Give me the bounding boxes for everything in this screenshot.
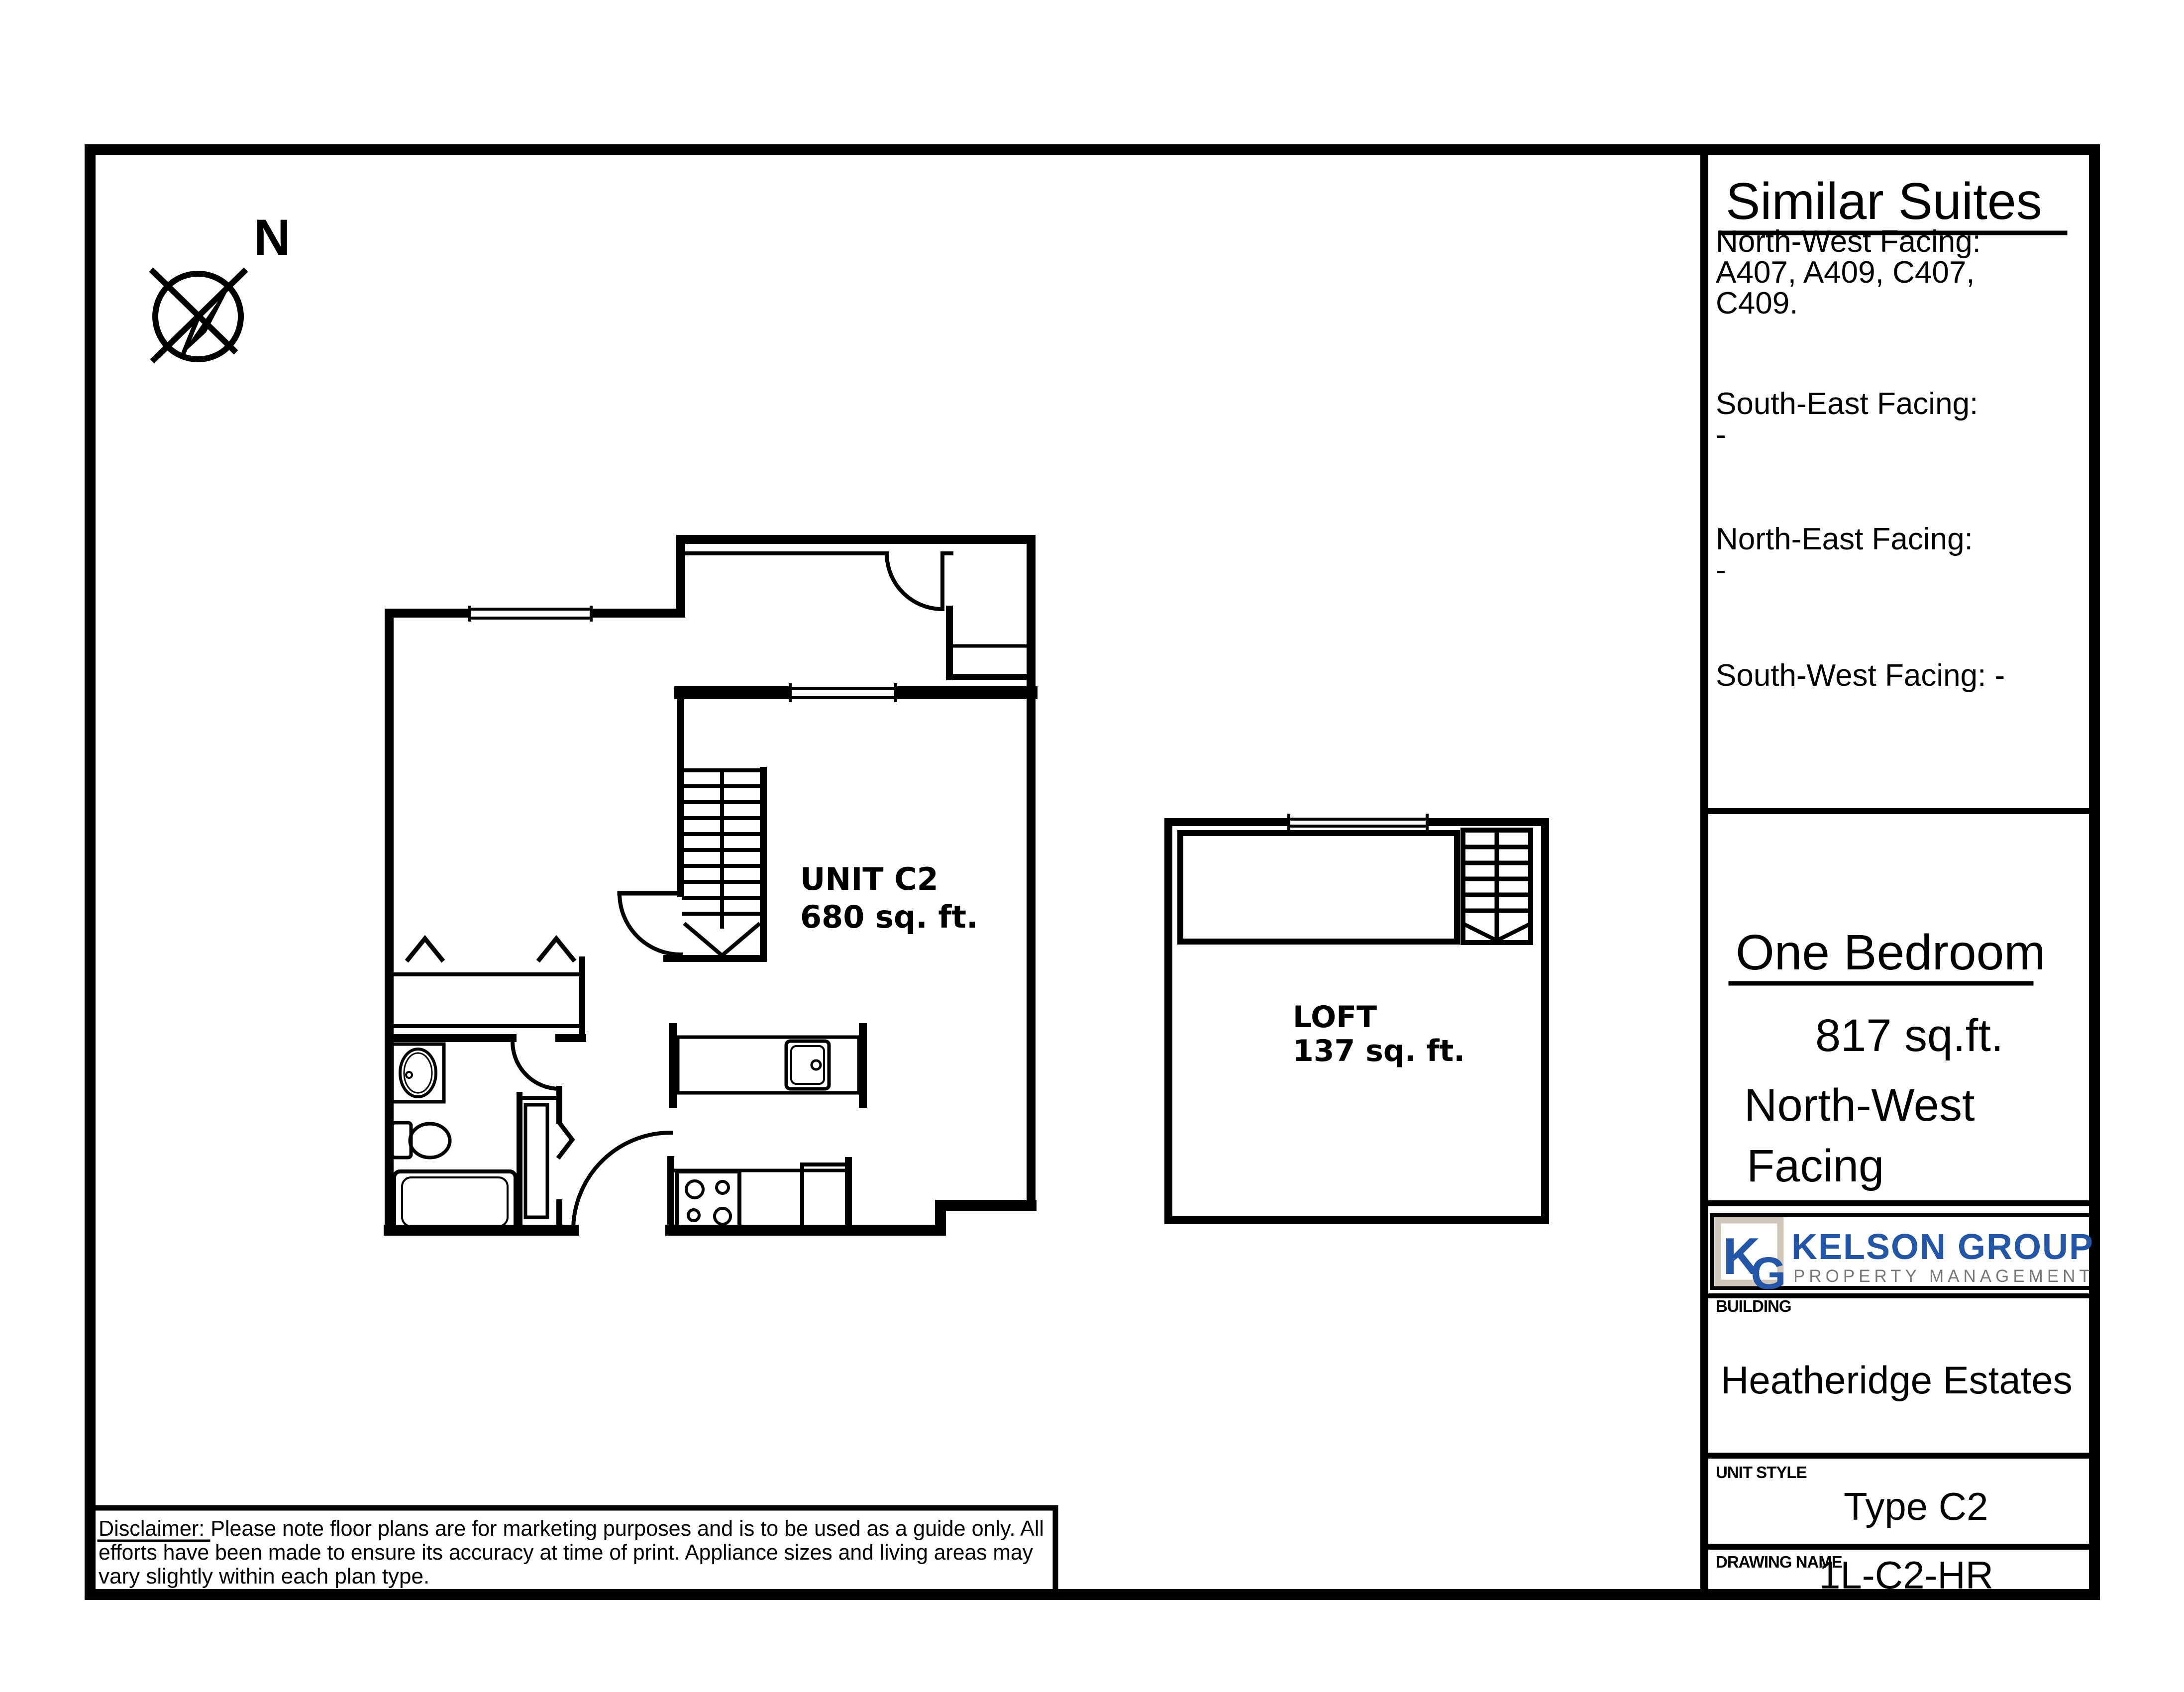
loft-open-below-area <box>1180 833 1457 942</box>
bathroom-sink <box>400 1049 436 1097</box>
facing-ne-units: - <box>1716 553 1726 587</box>
main-unit-plan: UNIT C2 680 sq. ft. <box>389 539 1031 1232</box>
facing-ne-label: North-East Facing: <box>1716 522 1973 556</box>
wall-bottom-right-notch <box>940 1205 1031 1230</box>
unit-summary-panel: One Bedroom 817 sq.ft. North-West Facing <box>1731 925 2046 1191</box>
island-counter <box>678 1037 859 1093</box>
stove-burner <box>688 1210 699 1221</box>
logo-company-name: KELSON GROUP <box>1791 1227 2094 1267</box>
facing-sw-label: South-West Facing: - <box>1716 658 2005 693</box>
similar-suites-title: Similar Suites <box>1726 173 2042 230</box>
drawing-canvas: N <box>0 0 2184 1692</box>
entry-bottom-wall <box>681 685 1031 701</box>
title-block: BUILDING Heatheridge Estates UNIT STYLE … <box>1704 1297 2094 1597</box>
unit-area-text: 817 sq.ft. <box>1815 1010 2003 1061</box>
logo-tagline: PROPERTY MANAGEMENT <box>1793 1267 2094 1286</box>
hall-closet <box>520 1089 572 1225</box>
unit-style-value: Type C2 <box>1844 1484 1988 1528</box>
stove-burner <box>717 1181 728 1193</box>
closet-shelf-band <box>389 974 582 1026</box>
stove-burner <box>715 1208 730 1224</box>
bedroom-closet <box>389 939 582 1038</box>
north-label: N <box>254 209 291 266</box>
unit-area-label: 680 sq. ft. <box>800 899 978 935</box>
bathtub-inner <box>402 1177 508 1226</box>
bathroom-door-arc <box>513 1041 559 1089</box>
island-sink-inner <box>791 1046 824 1084</box>
unit-type-heading: One Bedroom <box>1736 925 2046 980</box>
entry-closet <box>949 609 1031 677</box>
toilet-tank <box>392 1123 411 1158</box>
bedroom-door-arc <box>620 893 681 954</box>
hall-door <box>573 1133 671 1230</box>
stair-direction-arrow <box>686 925 758 955</box>
unit-name-label: UNIT C2 <box>800 861 938 897</box>
logo-g: G <box>1751 1248 1786 1299</box>
staircase <box>667 699 763 958</box>
facing-nw-label: North-West Facing: <box>1716 224 1981 259</box>
kitchen-island <box>673 1027 863 1104</box>
closet-rod-chevrons <box>408 939 573 959</box>
bathtub <box>394 1171 516 1232</box>
building-label: BUILDING <box>1716 1297 1791 1315</box>
unit-facing-line2: Facing <box>1747 1141 1884 1191</box>
unit-facing-line1: North-West <box>1744 1080 1975 1131</box>
disclaimer-line-3: vary slightly within each plan type. <box>99 1564 429 1588</box>
bathroom <box>392 1041 559 1232</box>
hall-door-arc <box>573 1133 671 1230</box>
bedroom-door <box>620 893 681 954</box>
loft-name-label: LOFT <box>1293 1000 1377 1035</box>
toilet-bowl <box>410 1124 450 1158</box>
island-faucet-dot <box>812 1060 821 1069</box>
disclaimer-line-1: Disclaimer: Please note floor plans are … <box>99 1516 1044 1541</box>
facing-se-label: South-East Facing: <box>1716 387 1978 421</box>
building-value: Heatheridge Estates <box>1721 1358 2073 1402</box>
facing-nw-units-2: C409. <box>1716 286 1798 320</box>
counter-appliance-block <box>802 1164 848 1230</box>
floor-plan-sheet: N <box>0 0 2184 1692</box>
loft-plan: LOFT 137 sq. ft. <box>1168 815 1545 1220</box>
bifold-door-icon <box>559 1123 572 1157</box>
disclaimer-line-2: efforts have been made to ensure its acc… <box>99 1540 1033 1565</box>
entry-door <box>681 553 951 609</box>
hall-closet-interior <box>525 1105 547 1217</box>
drawing-name-value: 1L-C2-HR <box>1819 1553 1993 1597</box>
sink-drain-dot <box>406 1072 412 1078</box>
kelson-logo: K G KELSON GROUP PROPERTY MANAGEMENT <box>1712 1215 2094 1299</box>
unit-style-label: UNIT STYLE <box>1716 1463 1807 1481</box>
compass-icon: N <box>153 209 291 359</box>
stove-burner <box>686 1181 703 1198</box>
bedroom-window <box>470 607 591 620</box>
similar-suites-panel: Similar Suites North-West Facing: A407, … <box>1716 173 2065 693</box>
loft-area-label: 137 sq. ft. <box>1293 1034 1465 1068</box>
loft-staircase <box>1463 830 1531 943</box>
facing-se-units: - <box>1716 418 1726 452</box>
disclaimer-box: Disclaimer: Please note floor plans are … <box>90 1508 1055 1594</box>
entry-door-arc <box>887 553 942 609</box>
kitchen-counter <box>671 1161 848 1230</box>
facing-nw-units-1: A407, A409, C407, <box>1716 255 1975 290</box>
